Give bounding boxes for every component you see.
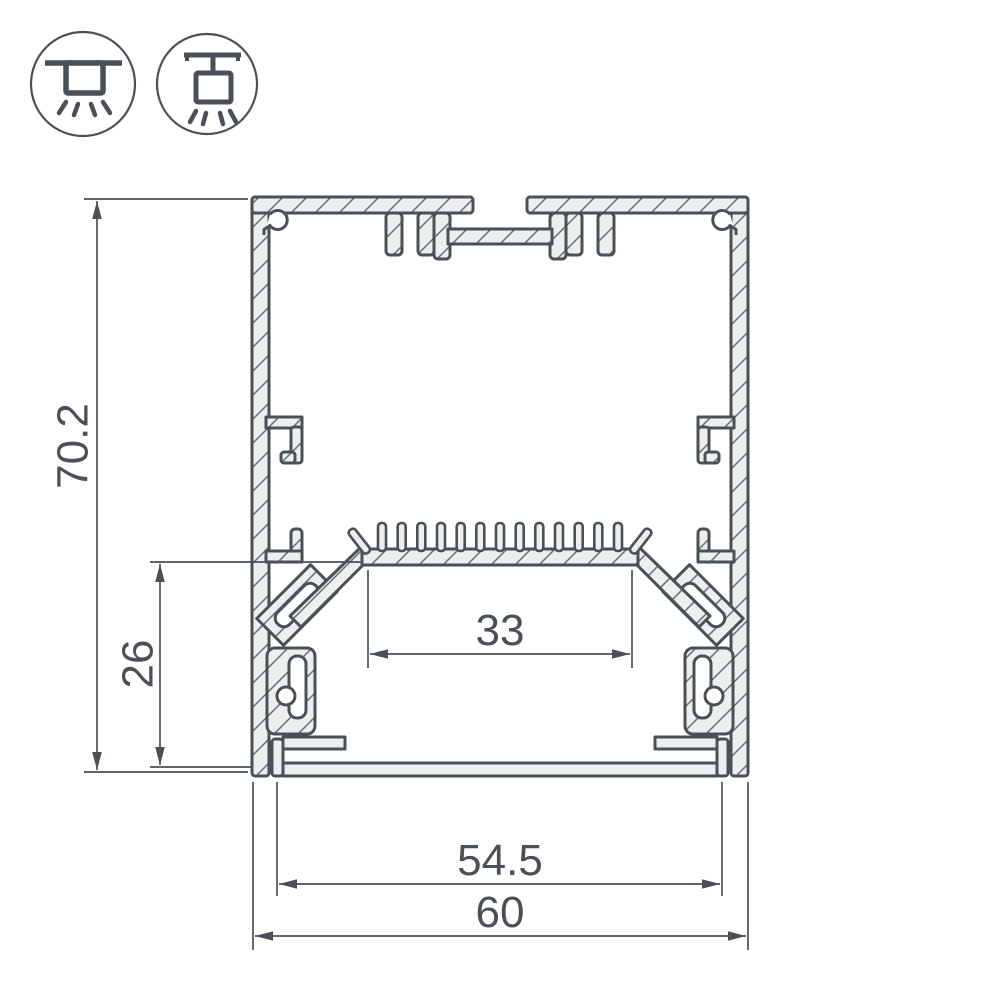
top-wall-right: [527, 197, 748, 213]
top-slot-leg: [418, 213, 434, 255]
diffuser-lip-right: [717, 739, 728, 776]
top-slot-leg: [386, 213, 402, 255]
dim-label-overall-width: 60: [476, 888, 525, 937]
dim-led-shelf-width: 33: [368, 570, 632, 668]
dim-label-cavity-height: 26: [113, 640, 162, 689]
pendant-mount-icon: [157, 34, 257, 134]
keyhole-circle-right: [705, 687, 723, 705]
wall-hooks-left: [266, 417, 302, 562]
profile-body: [252, 197, 748, 776]
dimensions: 70.2 26 33 54.5 60: [48, 199, 748, 950]
t-slot-base-plate: [448, 229, 552, 244]
diffuser-channel: [272, 737, 728, 776]
diffuser-lip-left: [272, 739, 283, 776]
luminaire-body: [196, 73, 231, 102]
dim-label-inner-width: 54.5: [457, 836, 543, 885]
surface-mount-icon: [31, 32, 135, 136]
light-rays: [190, 111, 236, 124]
dim-inner-width: 54.5: [277, 782, 722, 896]
mounting-icons: [31, 32, 257, 136]
keyhole-slot-right: [694, 656, 711, 718]
diffuser-plate: [283, 763, 717, 776]
top-slot-leg: [566, 213, 582, 255]
wall-hooks-right: [698, 417, 734, 562]
light-rays: [59, 102, 110, 115]
led-profile-cross-section-drawing: 70.2 26 33 54.5 60: [0, 0, 1000, 1000]
keyhole-circle-left: [277, 687, 295, 705]
diffuser-shelf-left: [283, 737, 345, 749]
top-wall-left: [252, 197, 473, 213]
keyhole-slot-left: [289, 656, 306, 718]
dim-label-overall-height: 70.2: [48, 403, 97, 489]
technical-drawing-page: 70.2 26 33 54.5 60: [0, 0, 1000, 1000]
dim-label-led-shelf-width: 33: [476, 606, 525, 655]
top-slot-leg: [598, 213, 614, 255]
diffuser-shelf-right: [655, 737, 717, 749]
luminaire-body: [66, 63, 103, 93]
